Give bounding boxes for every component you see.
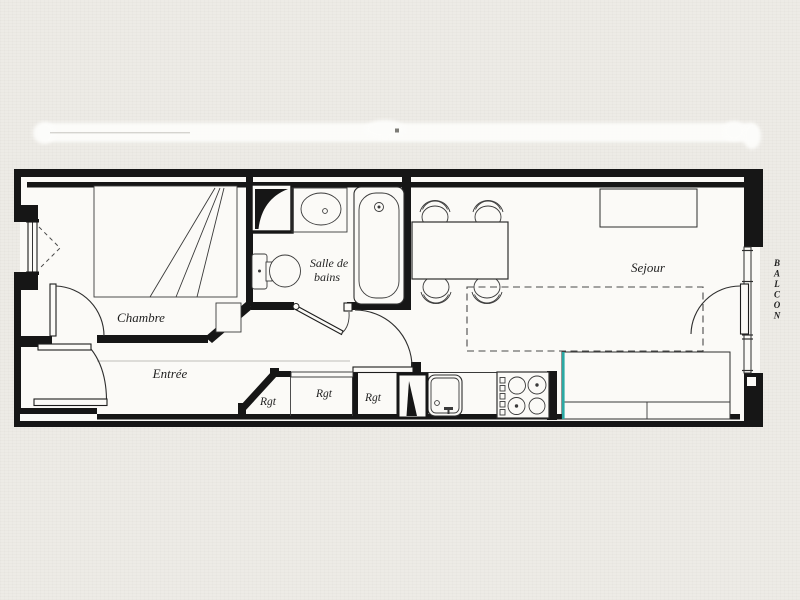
balcony-letter: O xyxy=(774,300,781,310)
storage-closet-front xyxy=(291,372,353,377)
duct-shaft-symbol-kitchen xyxy=(398,374,427,418)
sofa-symbol xyxy=(562,352,730,419)
storage-label-2: Rgt xyxy=(315,388,333,400)
balcony-label-vertical: B A L C O N xyxy=(773,258,781,321)
scanned-floor-plan-page: Chambre Entrée Salle de bains Sejour Rgt… xyxy=(0,0,800,600)
dining-table-symbol xyxy=(412,222,508,279)
kitchen-sink-symbol xyxy=(428,375,462,416)
wall-section-mark xyxy=(747,377,756,386)
storage-label-1: Rgt xyxy=(259,396,277,408)
toilet-symbol xyxy=(252,254,301,289)
balcony-letter: L xyxy=(773,279,780,289)
bathtub-symbol xyxy=(354,187,404,304)
room-label-sejour: Sejour xyxy=(631,260,666,275)
stove-symbol xyxy=(497,372,549,418)
balcony-letter: C xyxy=(774,290,781,300)
floor-plan: Chambre Entrée Salle de bains Sejour Rgt… xyxy=(0,0,800,600)
right-wall-top-block xyxy=(744,169,763,247)
room-label-chambre: Chambre xyxy=(117,310,165,325)
nightstand-symbol xyxy=(216,303,241,332)
storage-label-3: Rgt xyxy=(364,392,382,404)
room-label-salle-de-bains-line2: bains xyxy=(314,270,340,284)
balcony-letter: A xyxy=(773,269,780,279)
balcony-letter: B xyxy=(773,258,780,268)
duct-shaft-symbol-bathroom xyxy=(251,184,292,232)
scan-speck xyxy=(395,129,399,133)
whiteout-streak-artifact xyxy=(33,120,761,149)
bed-symbol xyxy=(94,186,237,297)
room-label-salle-de-bains-line1: Salle de xyxy=(310,256,349,270)
balcony-letter: N xyxy=(773,311,781,321)
room-label-entree: Entrée xyxy=(152,366,188,381)
